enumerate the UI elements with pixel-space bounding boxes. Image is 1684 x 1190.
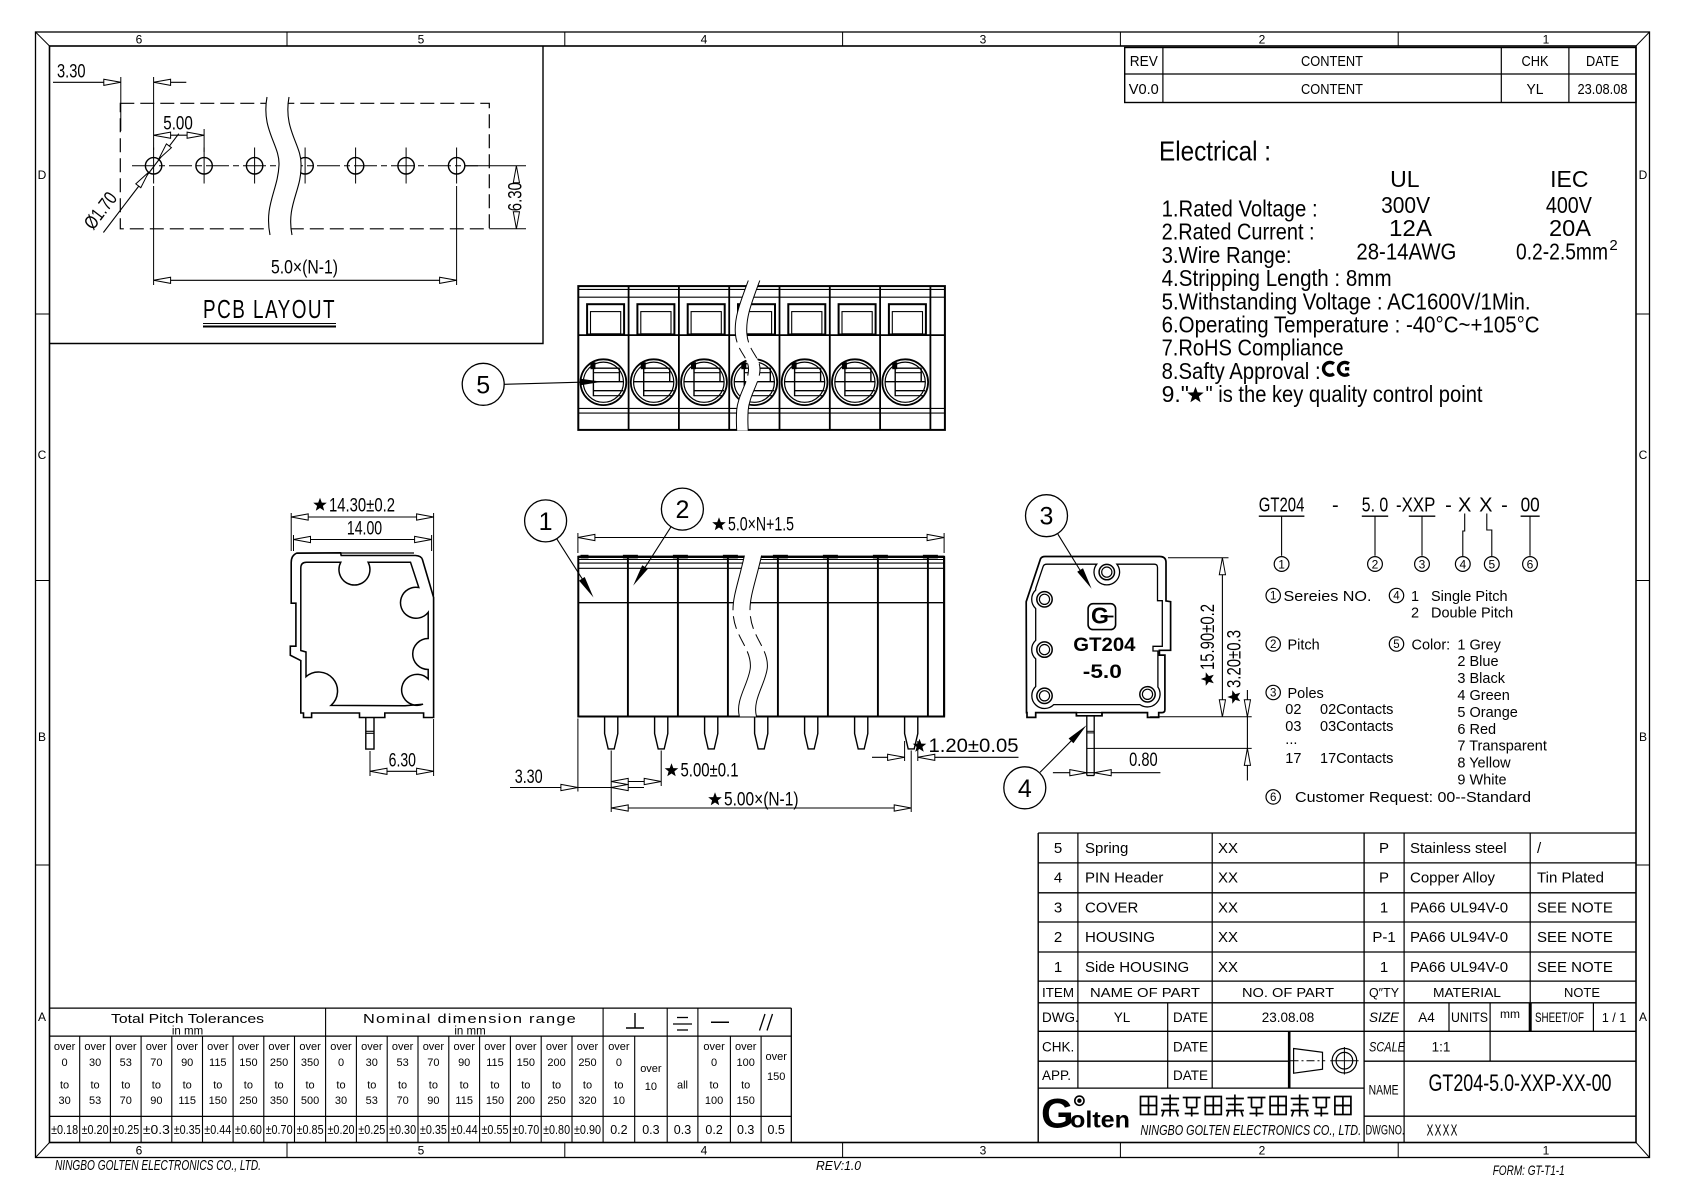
svg-text:0: 0 bbox=[711, 1057, 717, 1069]
svg-text:4.Stripping Length : 8mm: 4.Stripping Length : 8mm bbox=[1162, 265, 1392, 291]
svg-text:D: D bbox=[1639, 168, 1648, 182]
svg-text:Stainless steel: Stainless steel bbox=[1410, 840, 1507, 857]
svg-text:to: to bbox=[552, 1080, 561, 1092]
svg-text:90: 90 bbox=[181, 1057, 193, 1069]
svg-text:1:1: 1:1 bbox=[1432, 1040, 1451, 1055]
svg-text:A: A bbox=[1639, 1010, 1647, 1024]
svg-text:2: 2 bbox=[675, 496, 689, 524]
svg-text:3 Black: 3 Black bbox=[1457, 671, 1505, 687]
svg-text:90: 90 bbox=[458, 1057, 470, 1069]
svg-text:28-14AWG: 28-14AWG bbox=[1356, 238, 1456, 264]
svg-text:90: 90 bbox=[427, 1095, 439, 1107]
svg-text:over: over bbox=[361, 1041, 383, 1053]
svg-text:SEE NOTE: SEE NOTE bbox=[1537, 899, 1613, 916]
svg-text:to: to bbox=[336, 1080, 345, 1092]
svg-text:over: over bbox=[176, 1041, 198, 1053]
svg-text:over: over bbox=[484, 1041, 506, 1053]
svg-text:IEC: IEC bbox=[1550, 166, 1588, 192]
svg-text:00: 00 bbox=[1521, 495, 1540, 517]
svg-text:over: over bbox=[546, 1041, 568, 1053]
svg-text:Q″TY: Q″TY bbox=[1369, 985, 1399, 1000]
svg-text:6.30: 6.30 bbox=[506, 182, 527, 211]
svg-text:5.00×(N-1): 5.00×(N-1) bbox=[724, 790, 799, 811]
svg-text:2: 2 bbox=[1259, 33, 1266, 47]
svg-text:B: B bbox=[38, 730, 46, 744]
svg-text:500: 500 bbox=[301, 1095, 319, 1107]
svg-text:3: 3 bbox=[980, 33, 987, 47]
svg-text:70: 70 bbox=[150, 1057, 162, 1069]
svg-text:30: 30 bbox=[58, 1095, 70, 1107]
svg-text:Side HOUSING: Side HOUSING bbox=[1085, 959, 1189, 976]
svg-text:Poles: Poles bbox=[1288, 686, 1324, 702]
svg-text:over: over bbox=[54, 1041, 76, 1053]
svg-text:XX: XX bbox=[1218, 899, 1238, 916]
svg-text:over: over bbox=[238, 1041, 260, 1053]
svg-text:1 Grey: 1 Grey bbox=[1457, 637, 1501, 653]
svg-text:P-1: P-1 bbox=[1372, 929, 1395, 946]
svg-text:20A: 20A bbox=[1549, 215, 1592, 241]
svg-text:V0.0: V0.0 bbox=[1129, 81, 1159, 98]
svg-text:4: 4 bbox=[701, 1144, 708, 1158]
svg-text:over: over bbox=[577, 1041, 599, 1053]
svg-text:over: over bbox=[207, 1041, 229, 1053]
svg-text:30: 30 bbox=[89, 1057, 101, 1069]
svg-text:1: 1 bbox=[1380, 899, 1388, 916]
svg-text:100: 100 bbox=[737, 1057, 755, 1069]
svg-text:3: 3 bbox=[1054, 899, 1062, 916]
svg-text:5.0×N+1.5: 5.0×N+1.5 bbox=[728, 515, 794, 536]
svg-text:over: over bbox=[640, 1063, 662, 1075]
svg-text:2: 2 bbox=[1270, 639, 1276, 651]
svg-text:200: 200 bbox=[547, 1057, 565, 1069]
svg-text:150: 150 bbox=[767, 1071, 785, 1083]
svg-text:02: 02 bbox=[1285, 702, 1301, 718]
svg-text:to: to bbox=[583, 1080, 592, 1092]
svg-text:-XXP: -XXP bbox=[1396, 495, 1435, 517]
svg-text:in mm: in mm bbox=[454, 1026, 485, 1038]
svg-text:7 Transparent: 7 Transparent bbox=[1457, 739, 1546, 755]
svg-text:SCALE: SCALE bbox=[1369, 1040, 1406, 1055]
svg-text:6: 6 bbox=[136, 33, 143, 47]
svg-text:-: - bbox=[1445, 495, 1452, 517]
svg-text:1: 1 bbox=[539, 508, 553, 536]
svg-text:to: to bbox=[306, 1080, 315, 1092]
svg-text:12A: 12A bbox=[1389, 215, 1433, 241]
svg-text:0.5: 0.5 bbox=[768, 1123, 785, 1137]
svg-text:5: 5 bbox=[418, 33, 425, 47]
svg-text:1: 1 bbox=[1278, 557, 1285, 571]
svg-text:3: 3 bbox=[980, 1144, 987, 1158]
svg-text:PA66 UL94V-0: PA66 UL94V-0 bbox=[1410, 899, 1508, 916]
svg-text:2.Rated Current :: 2.Rated Current : bbox=[1162, 219, 1315, 245]
svg-text:olten: olten bbox=[1070, 1107, 1130, 1133]
svg-text:XXXX: XXXX bbox=[1427, 1123, 1459, 1140]
svg-text:to: to bbox=[60, 1080, 69, 1092]
svg-text:6.Operating Temperature : -40°: 6.Operating Temperature : -40°C~+105°C bbox=[1162, 312, 1540, 338]
svg-text:UNITS: UNITS bbox=[1451, 1010, 1488, 1025]
svg-text:3.20±0.3: 3.20±0.3 bbox=[1225, 630, 1246, 688]
svg-text:over: over bbox=[515, 1041, 537, 1053]
svg-text:D: D bbox=[38, 168, 47, 182]
svg-text:70: 70 bbox=[396, 1095, 408, 1107]
svg-text:1 / 1: 1 / 1 bbox=[1602, 1011, 1626, 1025]
svg-text:100: 100 bbox=[705, 1095, 723, 1107]
svg-text:Spring: Spring bbox=[1085, 840, 1128, 857]
svg-text:Sereies NO.: Sereies NO. bbox=[1284, 589, 1372, 605]
svg-text:to: to bbox=[244, 1080, 253, 1092]
svg-text:3.30: 3.30 bbox=[57, 62, 86, 83]
svg-text:Tin Plated: Tin Plated bbox=[1537, 870, 1604, 887]
svg-text:115: 115 bbox=[455, 1095, 473, 1107]
svg-text:Copper Alloy: Copper Alloy bbox=[1410, 870, 1496, 887]
svg-text:0.2: 0.2 bbox=[610, 1123, 627, 1137]
svg-text:to: to bbox=[213, 1080, 222, 1092]
svg-text:to: to bbox=[398, 1080, 407, 1092]
svg-text:over: over bbox=[608, 1041, 630, 1053]
svg-text:XX: XX bbox=[1218, 959, 1238, 976]
svg-text:DATE: DATE bbox=[1173, 1010, 1208, 1025]
svg-text:CHK: CHK bbox=[1522, 53, 1549, 70]
svg-text:2: 2 bbox=[1054, 929, 1062, 946]
svg-text:150: 150 bbox=[517, 1057, 535, 1069]
svg-text:±0.44: ±0.44 bbox=[204, 1123, 231, 1137]
svg-text:G: G bbox=[1041, 1090, 1074, 1137]
svg-text:APP.: APP. bbox=[1042, 1068, 1071, 1083]
svg-text:NINGBO GOLTEN ELECTRONICS CO.,: NINGBO GOLTEN ELECTRONICS CO., LTD. bbox=[55, 1157, 261, 1174]
svg-text:to: to bbox=[121, 1080, 130, 1092]
svg-text:02Contacts: 02Contacts bbox=[1320, 702, 1393, 718]
svg-text:0.3: 0.3 bbox=[674, 1123, 691, 1137]
svg-text:to: to bbox=[367, 1080, 376, 1092]
svg-text:to: to bbox=[490, 1080, 499, 1092]
svg-text:10: 10 bbox=[613, 1095, 625, 1107]
svg-text:5. 0: 5. 0 bbox=[1362, 495, 1388, 517]
svg-text:±0.85: ±0.85 bbox=[297, 1123, 324, 1137]
svg-text:3.30: 3.30 bbox=[515, 767, 543, 788]
svg-text:Pitch: Pitch bbox=[1288, 637, 1320, 653]
svg-text:XX: XX bbox=[1218, 870, 1238, 887]
svg-text:to: to bbox=[614, 1080, 623, 1092]
svg-text:6.30: 6.30 bbox=[389, 751, 416, 772]
svg-text:REV:1.0: REV:1.0 bbox=[816, 1158, 862, 1173]
svg-text:PCB LAYOUT: PCB LAYOUT bbox=[203, 294, 336, 324]
svg-text:±0.90: ±0.90 bbox=[574, 1123, 601, 1137]
svg-text:1: 1 bbox=[1411, 589, 1419, 605]
svg-text:COVER: COVER bbox=[1085, 899, 1139, 916]
svg-text:14.00: 14.00 bbox=[347, 519, 382, 540]
svg-text:DATE: DATE bbox=[1173, 1040, 1208, 1055]
svg-text:4: 4 bbox=[1018, 775, 1032, 803]
svg-text:5: 5 bbox=[476, 371, 490, 399]
svg-text:8.Safty Approval :: 8.Safty Approval : bbox=[1162, 358, 1321, 384]
svg-text:250: 250 bbox=[547, 1095, 565, 1107]
svg-text:±0.44: ±0.44 bbox=[451, 1123, 478, 1137]
svg-text:5: 5 bbox=[418, 1144, 425, 1158]
svg-text:±0.30: ±0.30 bbox=[389, 1123, 416, 1137]
svg-text:B: B bbox=[1639, 730, 1647, 744]
svg-text:PIN Header: PIN Header bbox=[1085, 870, 1163, 887]
svg-text:to: to bbox=[429, 1080, 438, 1092]
svg-text:over: over bbox=[453, 1041, 475, 1053]
svg-text:DWG.: DWG. bbox=[1042, 1010, 1079, 1025]
svg-text:6: 6 bbox=[136, 1144, 143, 1158]
svg-text:5: 5 bbox=[1488, 557, 1495, 571]
svg-text:115: 115 bbox=[178, 1095, 196, 1107]
svg-text:1: 1 bbox=[1380, 959, 1388, 976]
svg-text:2 Blue: 2 Blue bbox=[1457, 654, 1498, 670]
svg-text:3: 3 bbox=[1040, 503, 1054, 531]
svg-text:to: to bbox=[710, 1080, 719, 1092]
svg-text:1.20±0.05: 1.20±0.05 bbox=[929, 736, 1019, 757]
svg-text:over: over bbox=[703, 1041, 725, 1053]
svg-text:5: 5 bbox=[1393, 639, 1399, 651]
svg-text:to: to bbox=[460, 1080, 469, 1092]
svg-text:YL: YL bbox=[1114, 1010, 1131, 1025]
svg-text:NAME OF PART: NAME OF PART bbox=[1090, 985, 1200, 1000]
svg-text:1: 1 bbox=[1543, 1144, 1550, 1158]
svg-text:...: ... bbox=[1285, 732, 1297, 748]
svg-text:A: A bbox=[38, 1010, 46, 1024]
svg-text:1: 1 bbox=[1543, 33, 1550, 47]
svg-text:over: over bbox=[735, 1041, 757, 1053]
svg-text:over: over bbox=[392, 1041, 414, 1053]
svg-text:5.00: 5.00 bbox=[163, 114, 193, 135]
svg-text:250: 250 bbox=[270, 1057, 288, 1069]
svg-text:14.30±0.2: 14.30±0.2 bbox=[329, 496, 395, 517]
svg-text:0.3: 0.3 bbox=[642, 1123, 659, 1137]
svg-text:±0.35: ±0.35 bbox=[174, 1123, 201, 1137]
svg-text:P: P bbox=[1379, 870, 1389, 887]
svg-text:Customer Request: 00--Standard: Customer Request: 00--Standard bbox=[1295, 789, 1531, 806]
svg-text:Color:: Color: bbox=[1412, 637, 1451, 653]
svg-text:PA66 UL94V-0: PA66 UL94V-0 bbox=[1410, 929, 1508, 946]
svg-text:4 Green: 4 Green bbox=[1457, 688, 1509, 704]
svg-text:6 Red: 6 Red bbox=[1457, 722, 1496, 738]
svg-text:±0.55: ±0.55 bbox=[482, 1123, 509, 1137]
svg-text:PA66 UL94V-0: PA66 UL94V-0 bbox=[1410, 959, 1508, 976]
svg-text:8 Yellow: 8 Yellow bbox=[1457, 756, 1511, 772]
svg-text:53: 53 bbox=[120, 1057, 132, 1069]
svg-text:SEE NOTE: SEE NOTE bbox=[1537, 929, 1613, 946]
svg-text:200: 200 bbox=[517, 1095, 535, 1107]
svg-text:±0.25: ±0.25 bbox=[358, 1123, 385, 1137]
svg-text:±0.25: ±0.25 bbox=[112, 1123, 139, 1137]
svg-text:30: 30 bbox=[366, 1057, 378, 1069]
svg-text:30: 30 bbox=[335, 1095, 347, 1107]
svg-text:53: 53 bbox=[366, 1095, 378, 1107]
svg-text:1: 1 bbox=[1270, 591, 1276, 603]
svg-text:to: to bbox=[521, 1080, 530, 1092]
svg-text:0: 0 bbox=[62, 1057, 68, 1069]
svg-text:to: to bbox=[91, 1080, 100, 1092]
svg-text:±0.70: ±0.70 bbox=[512, 1123, 539, 1137]
svg-text:DWGNO.: DWGNO. bbox=[1366, 1123, 1405, 1138]
svg-text:70: 70 bbox=[120, 1095, 132, 1107]
svg-text:±0.70: ±0.70 bbox=[266, 1123, 293, 1137]
svg-text:4: 4 bbox=[1393, 591, 1400, 603]
svg-text:90: 90 bbox=[150, 1095, 162, 1107]
svg-text:-: - bbox=[1332, 495, 1339, 517]
svg-text:150: 150 bbox=[486, 1095, 504, 1107]
svg-text:to: to bbox=[275, 1080, 284, 1092]
svg-text:over: over bbox=[299, 1041, 321, 1053]
svg-text:±0.35: ±0.35 bbox=[420, 1123, 447, 1137]
svg-text:23.08.08: 23.08.08 bbox=[1262, 1010, 1315, 1025]
svg-text:over: over bbox=[765, 1051, 787, 1063]
svg-text:Single Pitch: Single Pitch bbox=[1431, 589, 1508, 605]
svg-text:5: 5 bbox=[1054, 840, 1062, 857]
svg-text:DATE: DATE bbox=[1173, 1068, 1208, 1083]
svg-text:17Contacts: 17Contacts bbox=[1320, 751, 1393, 767]
svg-text:MATERIAL: MATERIAL bbox=[1433, 985, 1501, 1000]
svg-text:to: to bbox=[741, 1080, 750, 1092]
svg-text:mm: mm bbox=[1500, 1007, 1520, 1021]
svg-text:17: 17 bbox=[1285, 751, 1301, 767]
svg-text:2: 2 bbox=[1609, 237, 1617, 254]
svg-text:REV: REV bbox=[1130, 53, 1158, 70]
svg-text:0.2-2.5mm: 0.2-2.5mm bbox=[1516, 238, 1608, 264]
svg-text:±0.3: ±0.3 bbox=[143, 1123, 170, 1137]
svg-text:9.": 9." bbox=[1162, 381, 1189, 407]
svg-text:250: 250 bbox=[578, 1057, 596, 1069]
svg-text:over: over bbox=[146, 1041, 168, 1053]
svg-text:Electrical :: Electrical : bbox=[1159, 136, 1271, 167]
svg-text:250: 250 bbox=[239, 1095, 257, 1107]
svg-text:150: 150 bbox=[239, 1057, 257, 1069]
svg-text:300V: 300V bbox=[1381, 192, 1431, 218]
svg-text:SEE NOTE: SEE NOTE bbox=[1537, 959, 1613, 976]
svg-text:±0.60: ±0.60 bbox=[235, 1123, 262, 1137]
svg-text:-: - bbox=[1501, 495, 1508, 517]
svg-text:SHEET/OF: SHEET/OF bbox=[1535, 1010, 1584, 1025]
svg-text:P: P bbox=[1379, 840, 1389, 857]
svg-text:over: over bbox=[84, 1041, 106, 1053]
svg-text:±0.20: ±0.20 bbox=[328, 1123, 355, 1137]
svg-text:150: 150 bbox=[209, 1095, 227, 1107]
svg-text:NAME: NAME bbox=[1369, 1083, 1399, 1098]
svg-text:NO. OF PART: NO. OF PART bbox=[1242, 985, 1334, 1000]
svg-text:XX: XX bbox=[1218, 929, 1238, 946]
svg-text:NOTE: NOTE bbox=[1564, 985, 1600, 1000]
svg-text:to: to bbox=[183, 1080, 192, 1092]
svg-text:over: over bbox=[330, 1041, 352, 1053]
svg-text:over: over bbox=[115, 1041, 137, 1053]
svg-text:ITEM: ITEM bbox=[1042, 985, 1074, 1000]
svg-text:SIZE: SIZE bbox=[1369, 1010, 1400, 1025]
svg-text:in mm: in mm bbox=[172, 1026, 203, 1038]
svg-text:15.90±0.2: 15.90±0.2 bbox=[1198, 604, 1219, 670]
svg-text:1: 1 bbox=[1054, 959, 1062, 976]
svg-text:FORM: GT-T1-1: FORM: GT-T1-1 bbox=[1493, 1162, 1565, 1178]
svg-text:6: 6 bbox=[1527, 557, 1534, 571]
svg-text:150: 150 bbox=[737, 1095, 755, 1107]
svg-text:1.Rated Voltage :: 1.Rated Voltage : bbox=[1162, 196, 1318, 222]
svg-text:7.RoHS Compliance: 7.RoHS Compliance bbox=[1162, 335, 1344, 361]
svg-text:-5.0: -5.0 bbox=[1083, 661, 1122, 683]
svg-text:over: over bbox=[423, 1041, 445, 1053]
svg-text:" is the key quality control p: " is the key quality control point bbox=[1206, 381, 1484, 407]
svg-text:10: 10 bbox=[645, 1081, 657, 1093]
svg-text:X: X bbox=[1479, 495, 1492, 517]
svg-text:400V: 400V bbox=[1546, 192, 1593, 218]
svg-text:5 Orange: 5 Orange bbox=[1457, 705, 1517, 721]
svg-text:UL: UL bbox=[1390, 166, 1420, 192]
svg-text:4: 4 bbox=[1459, 557, 1466, 571]
svg-text:HOUSING: HOUSING bbox=[1085, 929, 1155, 946]
svg-text:GT204-5.0-XXP-XX-00: GT204-5.0-XXP-XX-00 bbox=[1429, 1070, 1612, 1097]
svg-text:0.80: 0.80 bbox=[1129, 750, 1158, 771]
svg-text:6: 6 bbox=[1270, 792, 1276, 804]
svg-text:to: to bbox=[152, 1080, 161, 1092]
svg-text:70: 70 bbox=[427, 1057, 439, 1069]
svg-text:9 White: 9 White bbox=[1457, 773, 1506, 789]
svg-text:4: 4 bbox=[701, 33, 708, 47]
svg-text:all: all bbox=[677, 1080, 688, 1092]
svg-text:115: 115 bbox=[486, 1057, 504, 1069]
svg-text:3: 3 bbox=[1419, 557, 1426, 571]
svg-text:±0.20: ±0.20 bbox=[82, 1123, 109, 1137]
svg-text:53: 53 bbox=[396, 1057, 408, 1069]
svg-text:2: 2 bbox=[1259, 1144, 1266, 1158]
svg-text:GT204: GT204 bbox=[1073, 634, 1135, 656]
svg-text:GT204: GT204 bbox=[1259, 495, 1305, 517]
svg-text:3.Wire Range:: 3.Wire Range: bbox=[1162, 242, 1292, 268]
svg-text:over: over bbox=[268, 1041, 290, 1053]
svg-text:2: 2 bbox=[1372, 557, 1379, 571]
svg-text:DATE: DATE bbox=[1586, 53, 1619, 70]
svg-text:0.2: 0.2 bbox=[705, 1123, 722, 1137]
svg-text:G: G bbox=[1091, 603, 1109, 629]
svg-text:3: 3 bbox=[1270, 688, 1276, 700]
svg-text:C: C bbox=[38, 448, 47, 462]
svg-text:XX: XX bbox=[1218, 840, 1238, 857]
svg-text:0: 0 bbox=[338, 1057, 344, 1069]
svg-text:03Contacts: 03Contacts bbox=[1320, 719, 1393, 735]
svg-text:350: 350 bbox=[270, 1095, 288, 1107]
svg-text:0.3: 0.3 bbox=[737, 1123, 754, 1137]
svg-text:C: C bbox=[1639, 448, 1648, 462]
svg-text:X: X bbox=[1458, 495, 1471, 517]
svg-text:CONTENT: CONTENT bbox=[1301, 81, 1363, 98]
svg-text:CONTENT: CONTENT bbox=[1301, 53, 1363, 70]
svg-text:A4: A4 bbox=[1418, 1010, 1435, 1025]
svg-text:320: 320 bbox=[578, 1095, 596, 1107]
svg-text:2: 2 bbox=[1411, 605, 1419, 621]
svg-text:0: 0 bbox=[616, 1057, 622, 1069]
svg-text:4: 4 bbox=[1054, 870, 1062, 887]
svg-text:YL: YL bbox=[1527, 81, 1544, 98]
svg-text:±0.80: ±0.80 bbox=[543, 1123, 570, 1137]
svg-text:53: 53 bbox=[89, 1095, 101, 1107]
svg-text:CHK.: CHK. bbox=[1042, 1040, 1074, 1055]
svg-text:±0.18: ±0.18 bbox=[51, 1123, 78, 1137]
svg-text:115: 115 bbox=[209, 1057, 227, 1069]
svg-text:Nominal dimension range: Nominal dimension range bbox=[363, 1011, 577, 1026]
svg-text:NINGBO GOLTEN ELECTRONICS CO.,: NINGBO GOLTEN ELECTRONICS CO., LTD. bbox=[1140, 1122, 1361, 1139]
svg-text:5.00±0.1: 5.00±0.1 bbox=[681, 761, 739, 782]
svg-text:5.0×(N-1): 5.0×(N-1) bbox=[271, 258, 338, 279]
svg-text:5.Withstanding Voltage : AC160: 5.Withstanding Voltage : AC1600V/1Min. bbox=[1162, 288, 1531, 314]
svg-text:Double Pitch: Double Pitch bbox=[1431, 605, 1513, 621]
svg-text:23.08.08: 23.08.08 bbox=[1578, 81, 1628, 98]
svg-text:350: 350 bbox=[301, 1057, 319, 1069]
svg-text:Total Pitch Tolerances: Total Pitch Tolerances bbox=[111, 1011, 265, 1026]
